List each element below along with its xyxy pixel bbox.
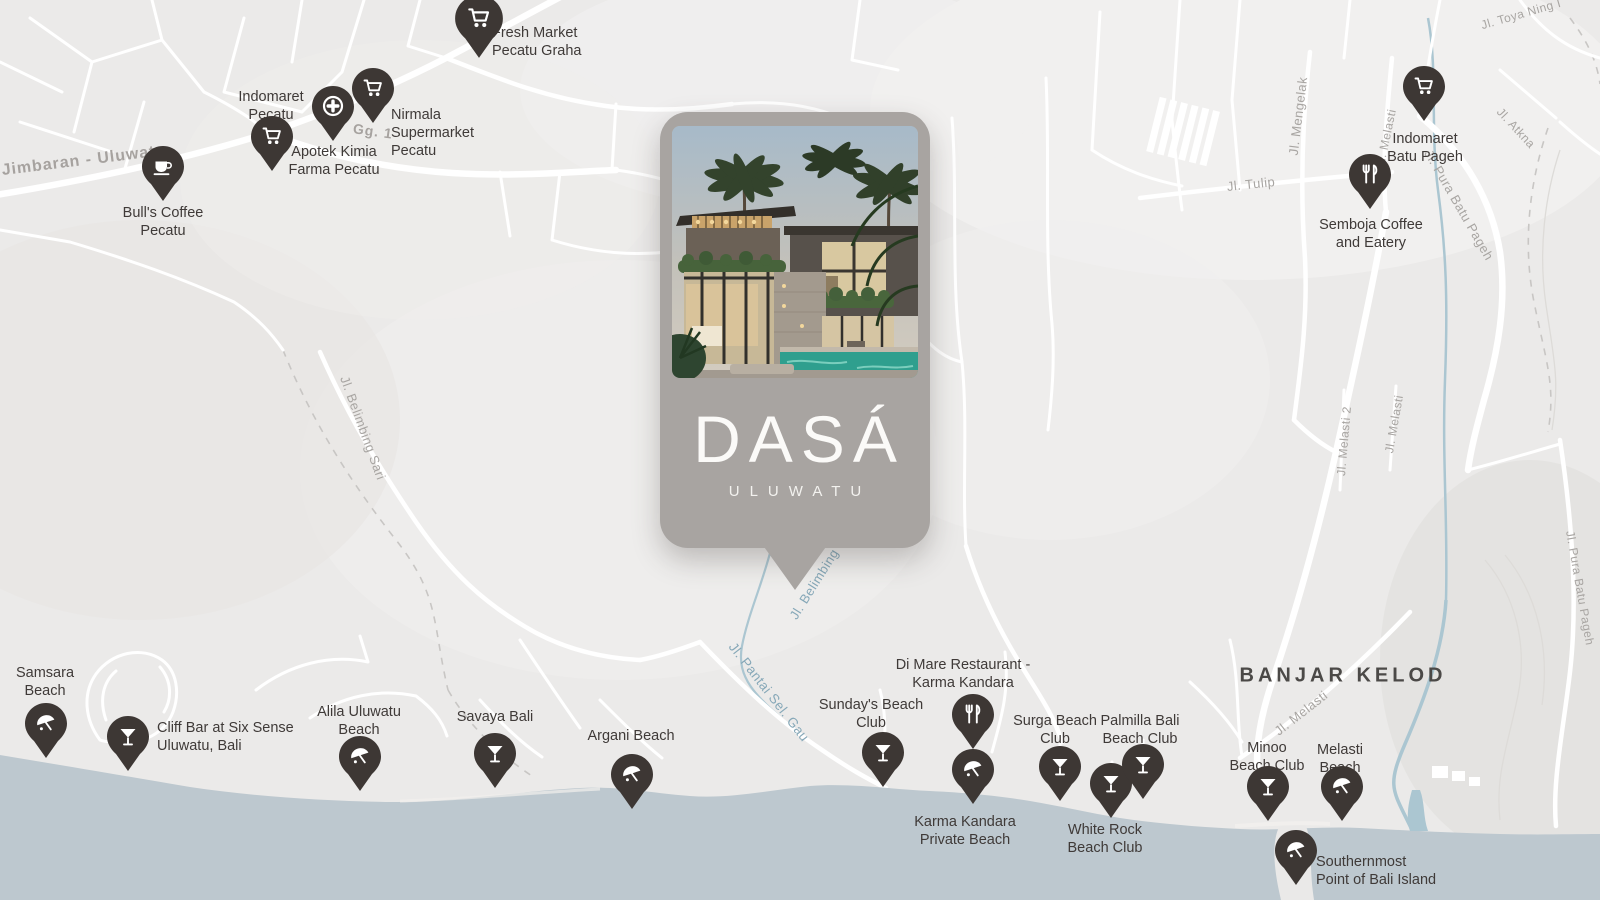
brand-wordmark: DASÁ	[660, 404, 930, 474]
brand-subtitle: ULUWATU	[660, 483, 930, 500]
card-pointer	[762, 544, 828, 590]
map-canvas: Jimbaran - UluwatuGg. 1Jl. Toya Ning IJl…	[0, 0, 1600, 900]
savaya-bali-pin[interactable]	[474, 733, 516, 789]
area-label-banjar-kelod: BANJAR KELOD	[1240, 665, 1447, 688]
di-mare-restaurant-karma-kandara-pin[interactable]	[952, 694, 994, 750]
melasti-beach-pin[interactable]	[1321, 766, 1363, 822]
indomaret-batu-pageh-pin[interactable]	[1403, 66, 1445, 122]
sundays-beach-club-pin[interactable]	[862, 732, 904, 788]
nirmala-supermarket-pecatu-pin[interactable]	[352, 68, 394, 124]
apotek-kimia-farma-pecatu-pin[interactable]	[312, 86, 354, 142]
dasa-marker-card[interactable]: DASÁ ULUWATU	[660, 112, 930, 548]
southernmost-point-pin[interactable]	[1275, 830, 1317, 886]
semboja-coffee-and-eatery-pin[interactable]	[1349, 154, 1391, 210]
indomaret-pecatu-pin[interactable]	[251, 116, 293, 172]
palmilla-bali-beach-club-pin[interactable]	[1122, 744, 1164, 800]
bulls-coffee-pecatu-pin[interactable]	[142, 146, 184, 202]
villa-photo	[672, 126, 918, 378]
samsara-beach-pin[interactable]	[25, 703, 67, 759]
karma-kandara-private-beach-pin[interactable]	[952, 749, 994, 805]
cliff-bar-six-sense-pin[interactable]	[107, 716, 149, 772]
alila-uluwatu-beach-pin[interactable]	[339, 736, 381, 792]
pharmacy-icon	[324, 97, 342, 115]
fresh-market-pecatu-graha-pin[interactable]	[455, 0, 503, 59]
surga-beach-club-pin[interactable]	[1039, 746, 1081, 802]
minoo-beach-club-pin[interactable]	[1247, 766, 1289, 822]
argani-beach-pin[interactable]	[611, 754, 653, 810]
